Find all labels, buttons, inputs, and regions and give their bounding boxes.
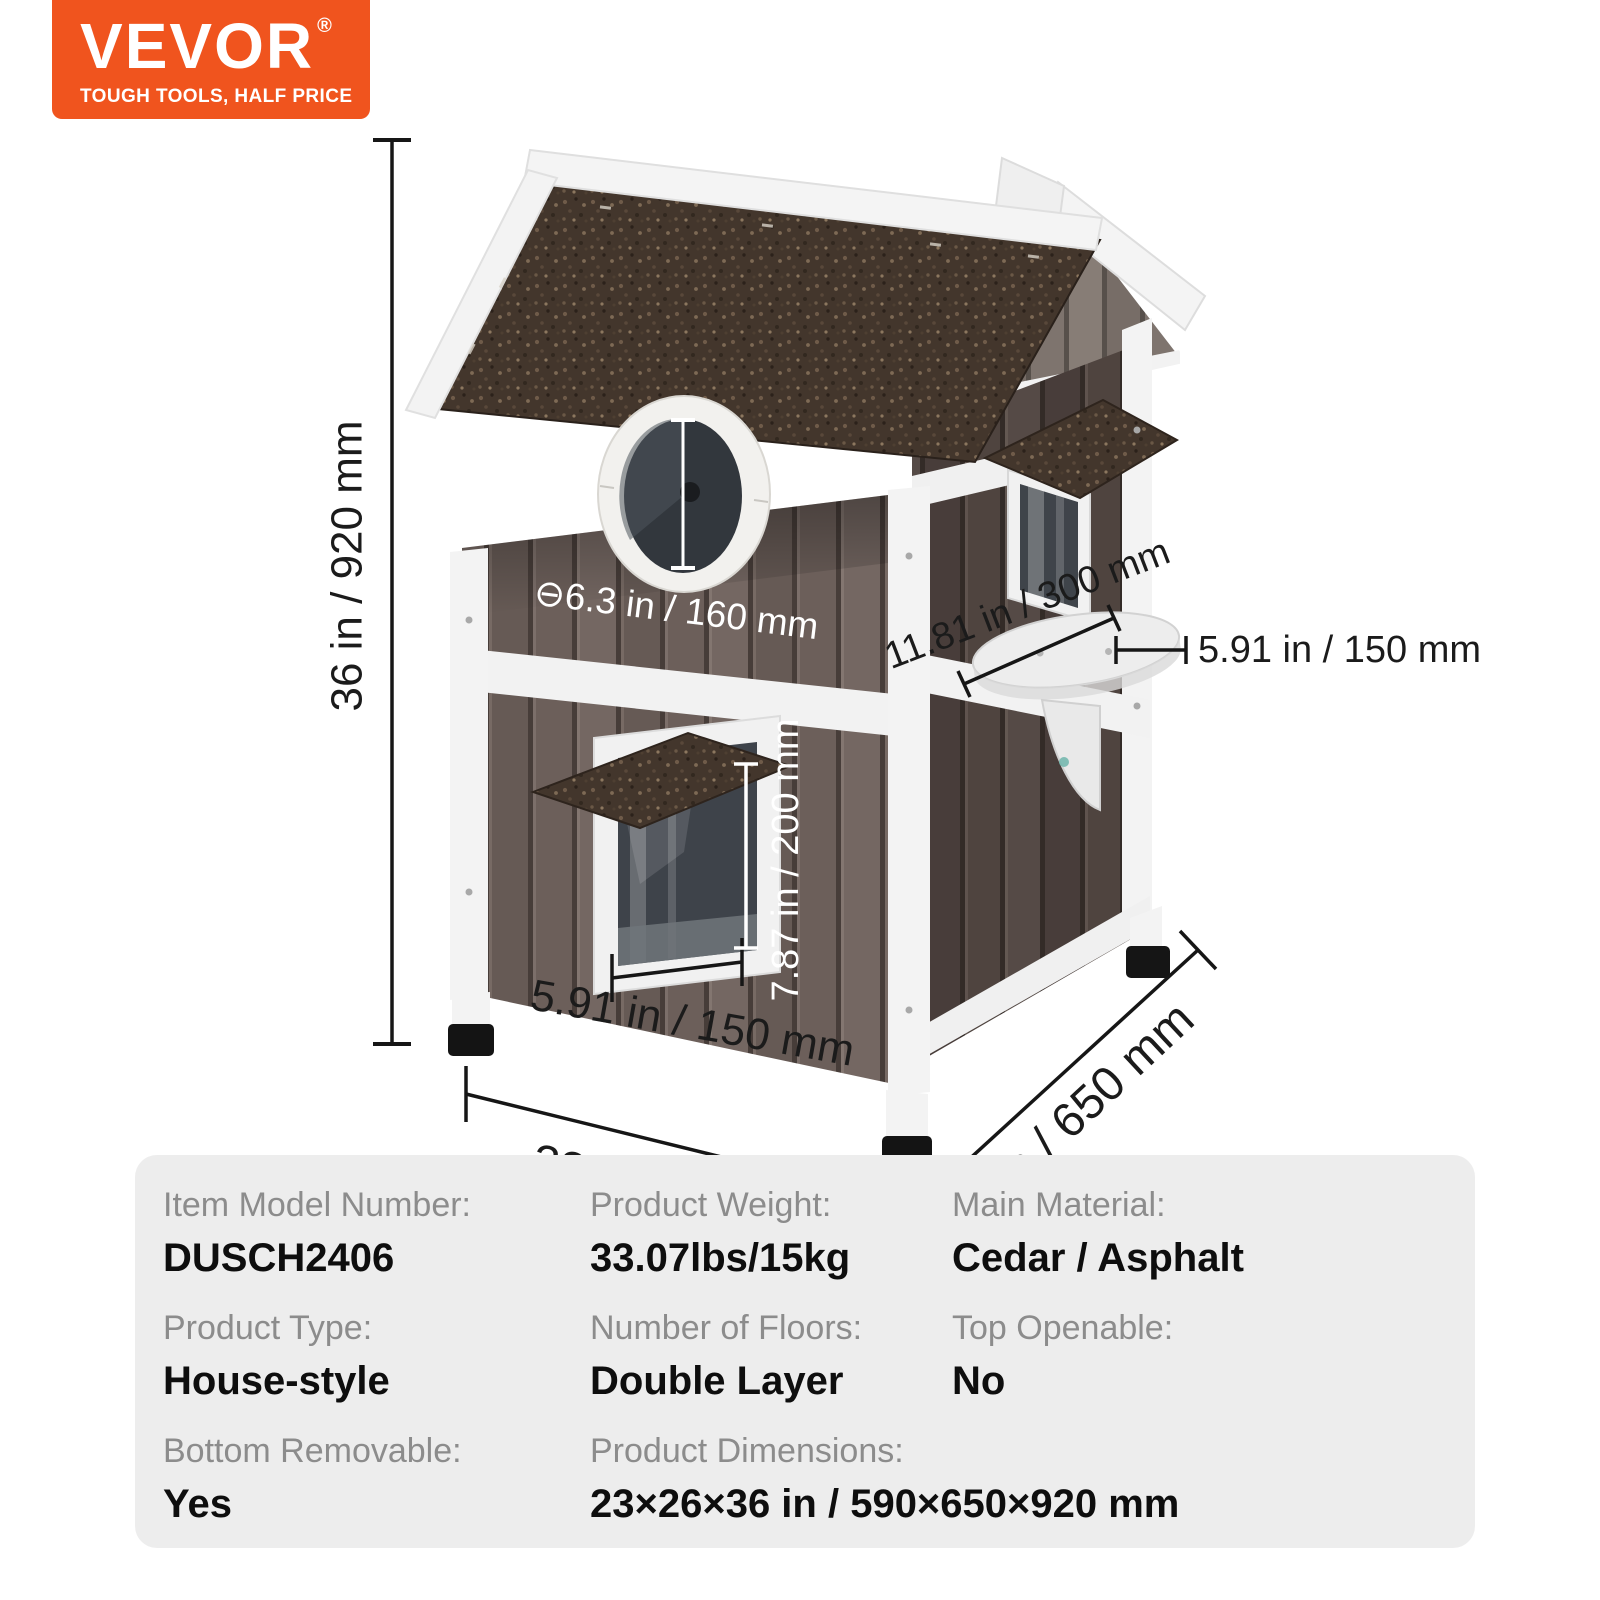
round-window: [598, 396, 770, 592]
spec-label: Product Dimensions:: [590, 1434, 1179, 1468]
spec-label: Item Model Number:: [163, 1188, 471, 1222]
spec-value: Cedar / Asphalt: [952, 1238, 1244, 1278]
spec-item-model-number: Item Model Number: DUSCH2406: [163, 1188, 471, 1278]
height-dimension-label: 36 in / 920 mm: [323, 420, 372, 711]
door-height-label: 7.87 in / 200 mm: [765, 718, 807, 1001]
spec-value: No: [952, 1361, 1173, 1401]
spec-label: Product Weight:: [590, 1188, 850, 1222]
bracket-logo-dot: [1059, 757, 1069, 767]
spec-value: Double Layer: [590, 1361, 862, 1401]
spec-label: Main Material:: [952, 1188, 1244, 1222]
product-infographic: VEVOR ® TOUGH TOOLS, HALF PRICE: [0, 0, 1600, 1600]
spec-number-of-floors: Number of Floors: Double Layer: [590, 1311, 862, 1401]
spec-product-weight: Product Weight: 33.07lbs/15kg: [590, 1188, 850, 1278]
spec-label: Product Type:: [163, 1311, 390, 1345]
spec-main-material: Main Material: Cedar / Asphalt: [952, 1188, 1244, 1278]
spec-value: Yes: [163, 1484, 462, 1524]
spec-product-type: Product Type: House-style: [163, 1311, 390, 1401]
spec-value: 23×26×36 in / 590×650×920 mm: [590, 1484, 1179, 1524]
spec-label: Number of Floors:: [590, 1311, 862, 1345]
spec-value: House-style: [163, 1361, 390, 1401]
front-right-corner-post: [888, 486, 930, 1096]
spec-value: DUSCH2406: [163, 1238, 471, 1278]
spec-table: Item Model Number: DUSCH2406 Product Wei…: [135, 1155, 1475, 1548]
spec-product-dimensions: Product Dimensions: 23×26×36 in / 590×65…: [590, 1434, 1179, 1524]
spec-top-openable: Top Openable: No: [952, 1311, 1173, 1401]
spec-label: Top Openable:: [952, 1311, 1173, 1345]
front-left-corner-post: [450, 548, 488, 1000]
perch-depth-label: 5.91 in / 150 mm: [1198, 629, 1481, 671]
back-right-foot: [1126, 946, 1170, 978]
front-right-leg: [886, 1090, 928, 1140]
spec-value: 33.07lbs/15kg: [590, 1238, 850, 1278]
front-left-foot: [448, 1024, 494, 1056]
spec-label: Bottom Removable:: [163, 1434, 462, 1468]
spec-bottom-removable: Bottom Removable: Yes: [163, 1434, 462, 1524]
